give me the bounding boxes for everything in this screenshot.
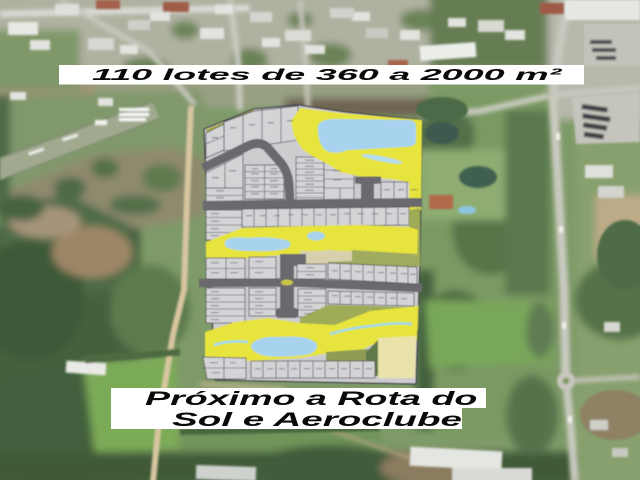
svg-text:110 lotes de 360 a 2000 m²: 110 lotes de 360 a 2000 m²	[92, 66, 563, 84]
svg-text:Sol e Aeroclube: Sol e Aeroclube	[172, 409, 462, 430]
svg-text:Próximo a Rota do: Próximo a Rota do	[145, 388, 477, 409]
